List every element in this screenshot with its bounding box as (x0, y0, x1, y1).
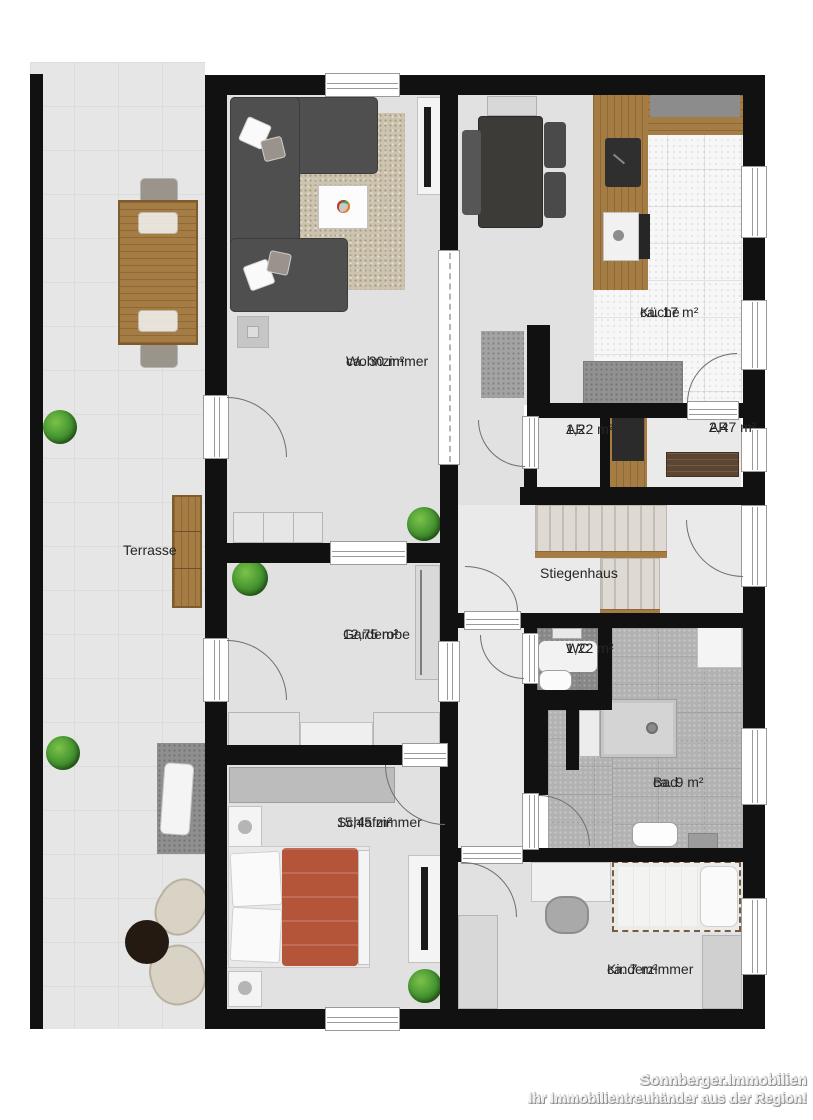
hand-basin (539, 670, 572, 691)
sideboard (228, 712, 300, 746)
door-corridor-kinderzimmer (461, 846, 523, 864)
oven (639, 214, 650, 259)
plant (408, 969, 442, 1003)
tv (421, 867, 428, 950)
wall-corridor-bath (524, 690, 548, 795)
plant (46, 736, 80, 770)
sideboard (481, 331, 524, 398)
wardrobe (415, 565, 440, 680)
opening-wohnzimmer-garderobe (330, 541, 407, 565)
bed-pillow (230, 907, 283, 964)
wall-top (205, 75, 765, 95)
dining-bench (487, 96, 537, 116)
room-area: 12,75 m² (343, 625, 398, 644)
room-area: ca. 17 m² (640, 303, 698, 322)
room-area: ca. 9 m² (653, 773, 704, 792)
place-setting (138, 212, 178, 234)
wall-terrace-left (30, 74, 43, 1029)
sideboard (373, 712, 440, 746)
bathroom-sink (632, 822, 678, 847)
wardrobe-detail (420, 570, 422, 675)
stove-knob (613, 230, 624, 241)
lamp (238, 820, 252, 834)
wardrobe (229, 767, 395, 803)
room-area: ca. 7 m² (607, 960, 658, 979)
outdoor-chair (140, 342, 178, 368)
desk-chair (545, 896, 589, 934)
room-area: 1,22 m² (566, 639, 613, 658)
room-area: 15,45 m² (337, 813, 392, 832)
bench-divider (172, 568, 202, 569)
chair (544, 122, 566, 168)
shower-tray (604, 703, 673, 754)
watermark-line1: Sonnberger.Immobilien (529, 1072, 807, 1090)
cabinet-detail (247, 326, 259, 338)
window-schlafzimmer-bottom (325, 1007, 400, 1031)
door-garderobe-corridor (438, 641, 460, 702)
door-wc (522, 633, 539, 684)
bench (300, 722, 373, 746)
bed-pillow (700, 866, 738, 927)
cistern (552, 628, 582, 639)
door-stairwell-corridor (464, 611, 521, 630)
duvet (282, 848, 358, 966)
stair-edge (535, 551, 667, 558)
room-area: 2,47 m² (709, 418, 756, 437)
room-area: ca. 30 m² (346, 352, 404, 371)
counter-slab (650, 95, 740, 117)
window-bad (741, 728, 767, 805)
throw-pillow (266, 250, 292, 276)
watermark: Sonnberger.Immobilien Ihr Immobilientreu… (529, 1072, 807, 1107)
chair (462, 130, 481, 215)
lamp (238, 981, 252, 995)
wall-above-stairwell (520, 487, 765, 505)
door-terrace-wohnzimmer (203, 395, 229, 459)
window-kueche-2 (741, 300, 767, 370)
washing-machine (697, 626, 742, 668)
bench-divider (172, 531, 202, 532)
dresser (458, 915, 498, 1009)
sun-lounger (160, 762, 195, 836)
floor-plan: Terrasse Wohnzimmer ca. 30 m² Küche ca. … (0, 0, 813, 1120)
door-terrace-garderobe (203, 638, 229, 702)
wardrobe (702, 935, 742, 1009)
wooden-bench (666, 452, 739, 477)
door-garderobe-schlafzimmer (402, 743, 448, 767)
utility-appliance (612, 417, 644, 461)
wall-bottom (205, 1009, 765, 1029)
bed-pillow (230, 851, 283, 908)
wall-kitchen-block (527, 325, 550, 418)
kitchen-island (583, 361, 683, 404)
room-name: Terrasse (123, 541, 177, 560)
shower-drain (646, 722, 658, 734)
room-area: 1,22 m² (566, 420, 613, 439)
tv (424, 107, 431, 187)
lowboard-divider (263, 512, 264, 543)
place-setting (138, 310, 178, 332)
window-wohnzimmer-top (325, 73, 400, 97)
plant (407, 507, 441, 541)
dining-table (478, 116, 543, 228)
door-corridor-bad (522, 793, 539, 850)
blanket (617, 867, 699, 926)
lowboard-divider (293, 512, 294, 543)
shower-door (579, 710, 600, 757)
staircase-upper (535, 505, 667, 553)
window-kueche-1 (741, 166, 767, 238)
bed-bench (358, 850, 370, 965)
watermark-line2: Ihr Immobilientreuhänder aus der Region! (529, 1090, 807, 1107)
plant (43, 410, 77, 444)
plant (232, 560, 268, 596)
room-name: Stiegenhaus (540, 564, 618, 583)
sliding-door-wohnzimmer-kueche (438, 250, 460, 465)
round-side-table (125, 920, 169, 964)
chair (544, 172, 566, 218)
lowboard (233, 512, 323, 543)
entrance-stairwell (741, 505, 767, 587)
window-kinderzimmer (741, 898, 767, 975)
fruit-bowl (337, 200, 350, 213)
